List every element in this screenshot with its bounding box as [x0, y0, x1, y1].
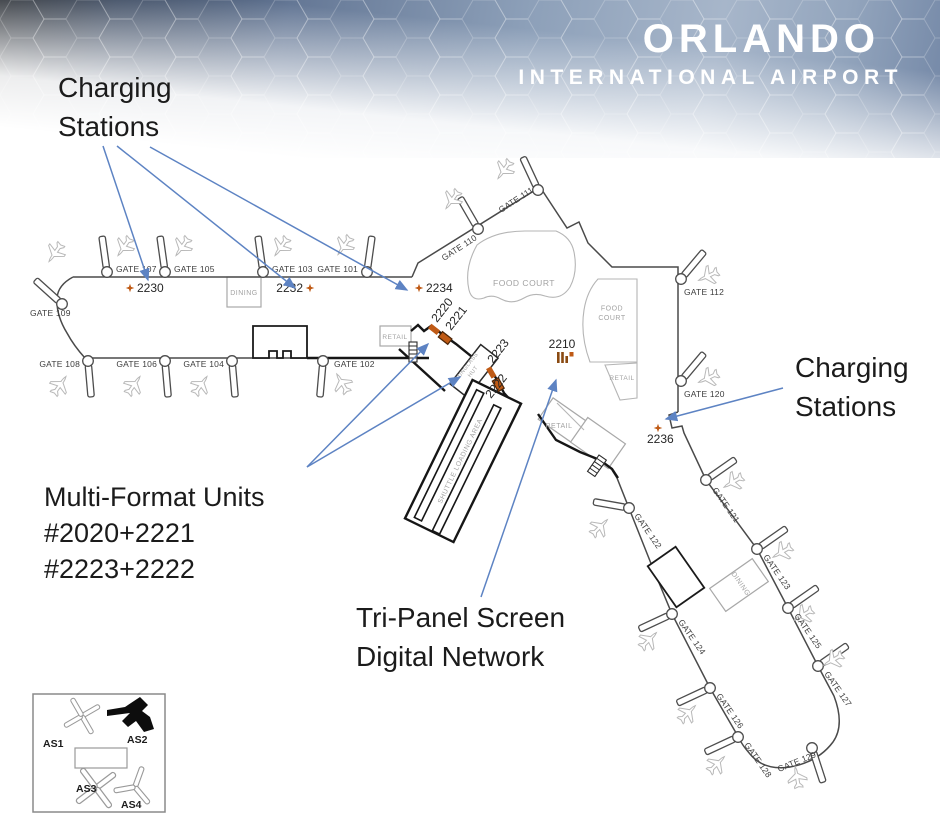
gate-label: GATE 103	[272, 264, 313, 274]
gate-label: GATE 112	[684, 287, 724, 297]
gate-label: GATE 109	[30, 308, 71, 318]
area-label-dining: DINING	[230, 290, 258, 297]
gate-gate-126: GATE 126	[674, 683, 746, 731]
gate-label: GATE 128	[742, 740, 774, 779]
gate-node	[701, 475, 712, 486]
gate-label: GATE 122	[632, 511, 664, 550]
charging-stations-label-right: Charging Stations	[795, 348, 909, 426]
gate-gate-121: GATE 121	[701, 457, 748, 525]
gate-label: GATE 111	[497, 185, 536, 215]
gate-node	[783, 603, 794, 614]
gate-node	[102, 267, 113, 278]
airplane-icon	[635, 626, 664, 655]
jet-bridge-icon	[317, 365, 326, 397]
jet-bridge-icon	[162, 365, 171, 397]
tri-panel-icon	[557, 352, 574, 363]
annotation-line: Stations	[58, 107, 172, 146]
gate-gate-122: GATE 122	[586, 499, 664, 551]
airplane-icon	[694, 263, 722, 289]
gate-node	[733, 732, 744, 743]
gate-gate-124: GATE 124	[635, 609, 708, 657]
gate-gate-125: GATE 125	[783, 585, 824, 651]
multi-format-unit-number: 2223	[484, 336, 512, 366]
jet-bridge-icon	[593, 499, 626, 511]
jet-bridge-icon	[704, 736, 736, 755]
jet-bridge-icon	[364, 236, 375, 269]
gate-node	[676, 376, 687, 387]
page: ORLANDO INTERNATIONAL AIRPORT	[0, 0, 940, 818]
gate-label: GATE 104	[183, 359, 224, 369]
legend-label-as1: AS1	[43, 738, 64, 750]
food-court-shape	[468, 231, 576, 302]
gate-gate-107: GATE 107	[99, 233, 157, 278]
gate-label: GATE 102	[334, 359, 375, 369]
gate-gate-120: GATE 120	[676, 351, 725, 399]
annotation-line: #2020+2221	[44, 516, 265, 552]
airplane-icon	[168, 233, 196, 262]
jet-bridge-icon	[681, 351, 706, 380]
charging-station-number: 2236	[647, 432, 674, 446]
tri-panel-unit-number: 2210	[549, 337, 576, 351]
airplane-icon	[586, 513, 615, 542]
gate-node	[160, 356, 171, 367]
gate-label: GATE 108	[39, 359, 80, 369]
gate-label: GATE 126	[714, 691, 746, 730]
area-label-retail: RETAIL	[382, 334, 407, 341]
gate-gate-105: GATE 105	[157, 233, 215, 278]
charging-stations-label-left: Charging Stations	[58, 68, 172, 146]
gate-node	[160, 267, 171, 278]
jet-bridge-icon	[157, 236, 168, 269]
charging-station-number: 2230	[137, 281, 164, 295]
gate-label: GATE 101	[317, 264, 358, 274]
gate-node	[473, 224, 484, 235]
annotation-line: #2223+2222	[44, 552, 265, 588]
main-terminal-icon	[75, 748, 127, 768]
tri-panel-screen-label: Tri-Panel Screen Digital Network	[356, 598, 565, 676]
airplane-icon	[490, 156, 518, 185]
area-label-food-court: FOOD COURT	[493, 278, 555, 288]
multi-format-units-label: Multi-Format Units #2020+2221 #2223+2222	[44, 480, 265, 588]
charging-station-number: 2234	[426, 281, 453, 295]
gate-label: GATE 107	[116, 264, 157, 274]
gate-gate-103: GATE 103	[255, 233, 313, 278]
jet-bridge-icon	[789, 585, 819, 609]
area-label-retail: RETAIL	[609, 375, 634, 382]
jet-bridge-icon	[99, 236, 110, 269]
airplane-icon	[46, 371, 74, 400]
gate-gate-110: GATE 110	[438, 186, 483, 263]
gate-label: GATE 106	[116, 359, 157, 369]
gate-gate-108: GATE 108	[39, 356, 94, 400]
airplane-icon	[694, 365, 722, 391]
gate-label: GATE 127	[822, 669, 854, 708]
area-label-food-court: FOODCOURT	[598, 305, 625, 322]
airplane-icon	[120, 371, 148, 400]
gate-gate-129: GATE 129	[776, 743, 826, 790]
charging-marker-icon	[415, 284, 424, 293]
charging-marker-icon	[126, 284, 135, 293]
gate-gate-106: GATE 106	[116, 356, 171, 400]
gate-gate-127: GATE 127	[813, 643, 854, 709]
legend-box: AS1 AS2 AS3 AS4	[33, 694, 165, 812]
charging-station-2230: 2230	[126, 281, 164, 295]
airplane-icon	[187, 371, 215, 400]
gate-label: GATE 120	[684, 389, 725, 399]
gate-node	[667, 609, 678, 620]
gate-label: GATE 124	[676, 617, 708, 656]
legend-label-as4: AS4	[121, 799, 142, 811]
gate-node	[813, 661, 824, 672]
annotation-line: Charging	[58, 68, 172, 107]
jet-bridge-icon	[229, 365, 238, 397]
annotation-line: Digital Network	[356, 637, 565, 676]
jet-bridge-icon	[681, 249, 706, 278]
gate-gate-102: GATE 102	[317, 356, 375, 398]
area-label-retail: RETAIL	[546, 423, 573, 430]
charging-marker-icon	[654, 424, 663, 433]
charging-station-2232: 2232	[276, 281, 314, 295]
gate-node	[227, 356, 238, 367]
charging-station-2236: 2236	[647, 424, 674, 446]
charging-marker-icon	[306, 284, 315, 293]
gate-node	[705, 683, 716, 694]
service-block-south-arm	[648, 547, 705, 607]
airplane-icon	[267, 233, 295, 262]
annotation-line: Tri-Panel Screen	[356, 598, 565, 637]
gate-gate-109: GATE 109	[30, 239, 71, 318]
airplane-icon	[41, 239, 69, 268]
gate-gate-101: GATE 101	[317, 232, 375, 278]
jet-bridge-icon	[638, 613, 670, 632]
gate-node	[258, 267, 269, 278]
charging-station-2234: 2234	[415, 281, 453, 295]
jet-bridge-icon	[33, 278, 61, 304]
jet-bridge-icon	[676, 687, 708, 706]
annotation-line: Multi-Format Units	[44, 480, 265, 516]
gate-label: GATE 105	[174, 264, 215, 274]
gate-node	[624, 503, 635, 514]
legend-label-as3: AS3	[76, 783, 97, 795]
annotation-line: Charging	[795, 348, 909, 387]
gate-gate-112: GATE 112	[676, 249, 724, 297]
gate-node	[318, 356, 329, 367]
gate-node	[83, 356, 94, 367]
gate-gate-111: GATE 111	[490, 156, 543, 215]
gate-node	[752, 544, 763, 555]
gate-label: GATE 121	[710, 485, 742, 524]
gate-gate-104: GATE 104	[183, 356, 238, 400]
jet-bridge-icon	[520, 156, 539, 188]
annotation-line: Stations	[795, 387, 909, 426]
jet-bridge-icon	[758, 526, 788, 550]
restroom-block-top-arm	[253, 326, 307, 358]
jet-bridge-icon	[85, 365, 94, 397]
gate-gate-128: GATE 128	[703, 732, 774, 780]
gate-node	[676, 274, 687, 285]
legend-label-as2: AS2	[127, 734, 148, 746]
airplane-icon	[329, 369, 356, 397]
